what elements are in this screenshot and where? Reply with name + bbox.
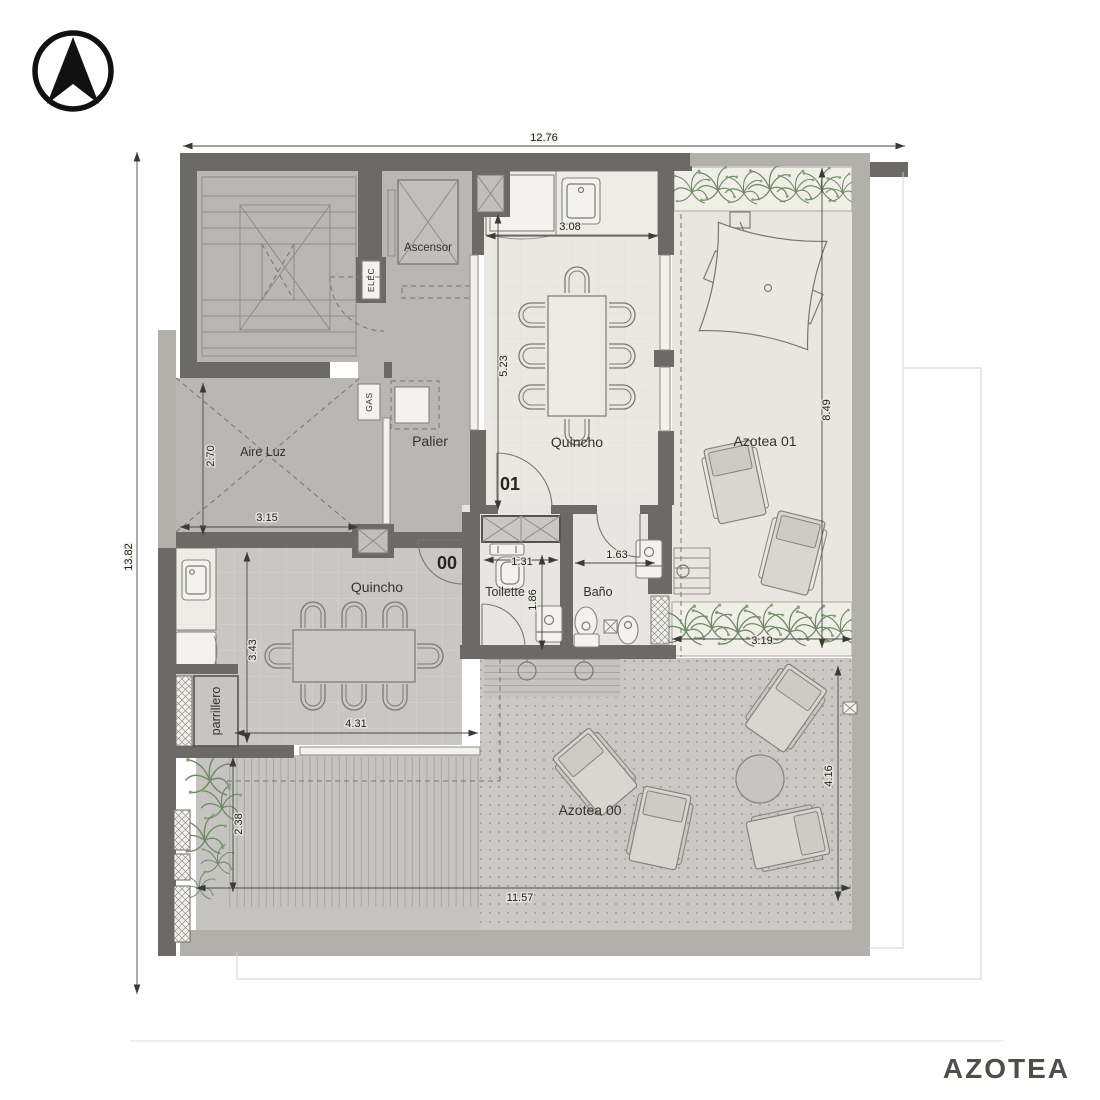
dim-deck-depth-label: 2.38 bbox=[233, 813, 245, 834]
dim-toilette-depth-label: 1.86 bbox=[527, 589, 539, 610]
plan-title: AZOTEA bbox=[943, 1053, 1070, 1084]
round-table bbox=[736, 755, 784, 803]
dim-azotea-00-depth-label: 4.16 bbox=[823, 765, 835, 786]
dim-aire-luz-width-label: 3.15 bbox=[256, 512, 277, 524]
dim-quincho-lower-depth-label: 3.43 bbox=[247, 639, 259, 660]
level-00-label: 00 bbox=[437, 553, 457, 573]
north-arrow-icon bbox=[35, 33, 111, 109]
window-aire-luz bbox=[383, 418, 390, 524]
floor-plan-canvas: 12.76 13.82 3.08 5.23 8.49 2.70 3.15 1. bbox=[0, 0, 1100, 1100]
azotea-01-fill bbox=[672, 165, 852, 602]
dim-overall-depth: 13.82 bbox=[123, 152, 137, 994]
quincho-lower-label: Quincho bbox=[351, 579, 403, 595]
dim-toilette-width-label: 1.31 bbox=[511, 556, 532, 568]
parrillero-label: parrillero bbox=[209, 687, 223, 736]
dim-planter-width-label: 3.19 bbox=[751, 635, 772, 647]
dim-overall-width-label: 12.76 bbox=[530, 132, 558, 144]
dim-quincho-upper-depth-label: 5.23 bbox=[498, 355, 510, 376]
dim-overall-depth-label: 13.82 bbox=[123, 543, 135, 571]
floor-plan-page: 12.76 13.82 3.08 5.23 8.49 2.70 3.15 1. bbox=[0, 0, 1100, 1100]
gas-label: GAS bbox=[364, 392, 374, 411]
dim-overall-width: 12.76 bbox=[183, 132, 905, 146]
vent-shaft-mid bbox=[358, 529, 388, 553]
window-quincho-lower bbox=[300, 747, 480, 755]
kitchen-counter-lower bbox=[176, 548, 217, 670]
dim-azotea-01-depth-label: 8.49 bbox=[821, 399, 833, 420]
ascensor-label: Ascensor bbox=[404, 242, 452, 254]
window-quincho-upper-1 bbox=[660, 255, 670, 350]
dim-quincho-upper-width-label: 3.08 bbox=[559, 221, 580, 233]
aire-luz-label: Aire Luz bbox=[240, 445, 286, 459]
dim-aire-luz-depth-label: 2.70 bbox=[205, 445, 217, 466]
palier-label: Palier bbox=[412, 433, 448, 449]
drain-box bbox=[843, 702, 857, 714]
deck-boards bbox=[224, 757, 480, 907]
level-01-label: 01 bbox=[500, 474, 520, 494]
bano-label: Baño bbox=[583, 585, 612, 599]
stairwell-fill bbox=[197, 171, 358, 362]
quincho-upper-label: Quincho bbox=[551, 434, 603, 450]
deck-upper-boards bbox=[484, 659, 620, 697]
dim-quincho-lower-width-label: 4.31 bbox=[345, 718, 366, 730]
window-quincho-upper-2 bbox=[660, 367, 670, 431]
toilette-label: Toilette bbox=[485, 585, 525, 599]
dim-bano-width-label: 1.63 bbox=[606, 549, 627, 561]
dim-azotea-00-width-label: 11.57 bbox=[507, 892, 534, 904]
elec-label: ELEC bbox=[366, 268, 376, 292]
toilette-closet bbox=[482, 516, 560, 542]
azotea-01-label: Azotea 01 bbox=[733, 433, 796, 449]
window-palier-quincho bbox=[470, 255, 478, 430]
duct-box-hatch bbox=[651, 596, 669, 644]
azotea-00-label: Azotea 00 bbox=[558, 802, 621, 818]
vent-shaft-top bbox=[477, 175, 504, 212]
